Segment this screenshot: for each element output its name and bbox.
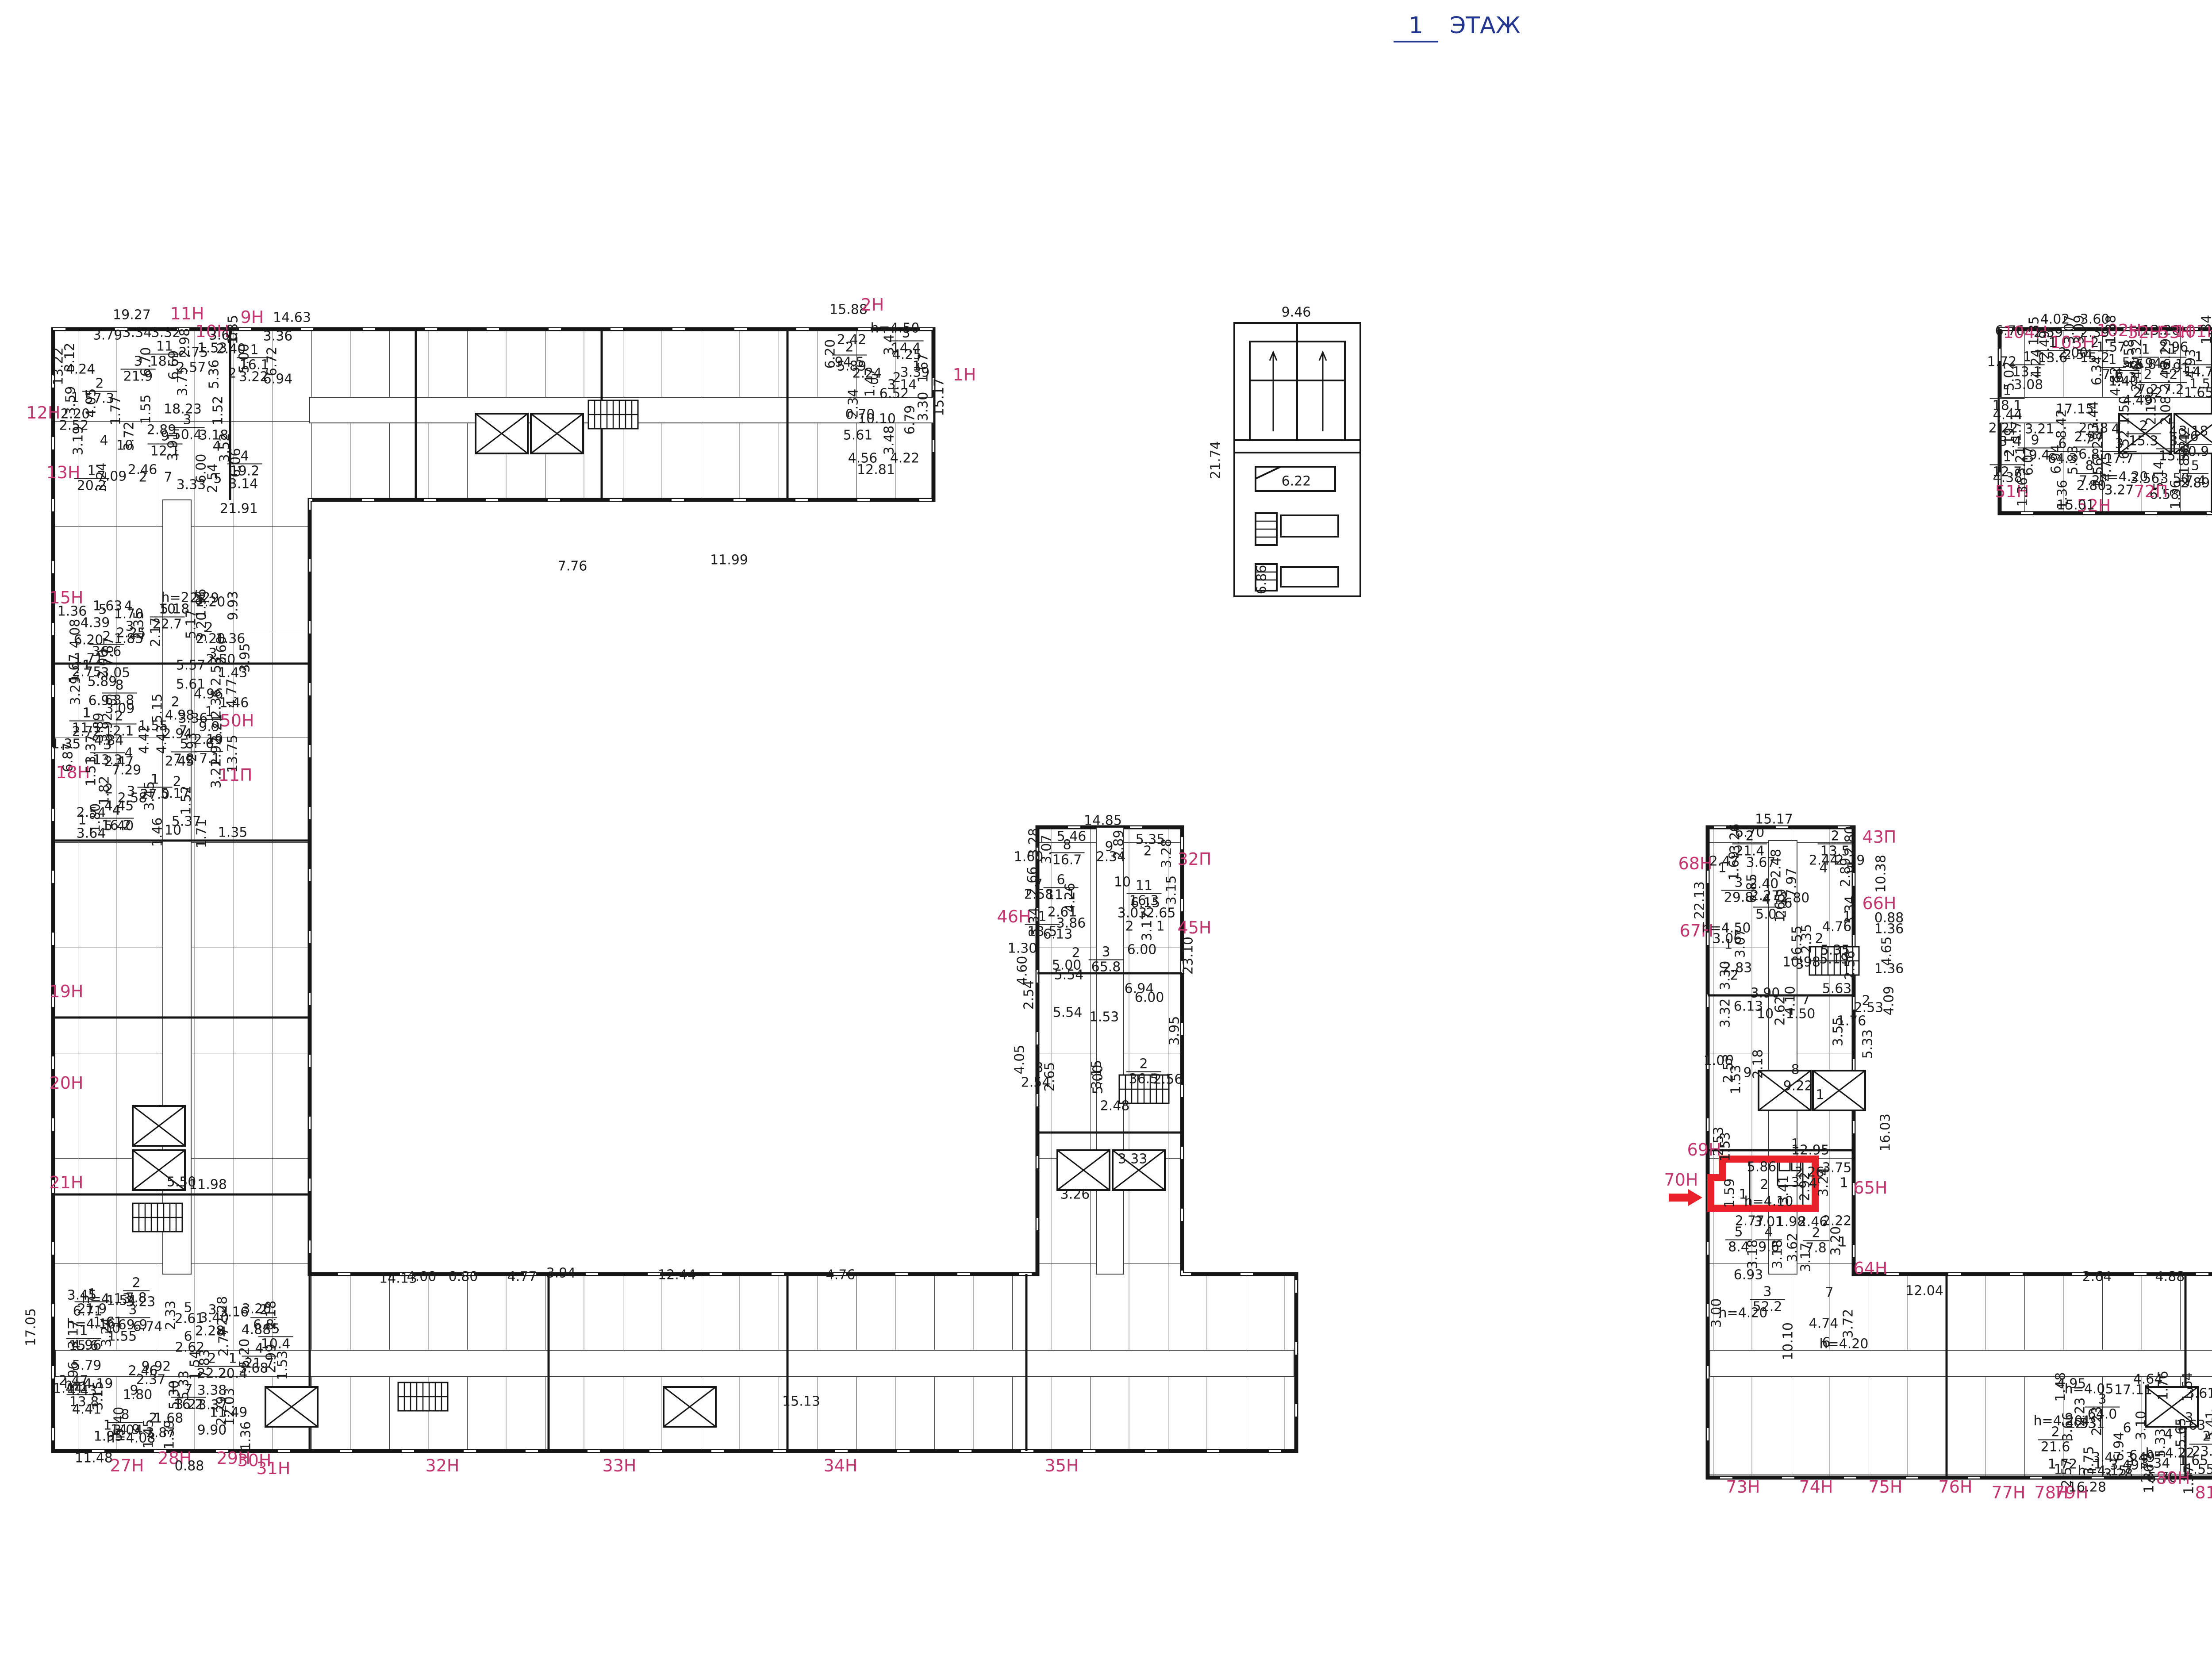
dimension-label: 22.13 bbox=[1693, 881, 1707, 919]
dimension-label: 5.37 bbox=[172, 814, 201, 829]
dimension-label: 2.54 bbox=[2063, 348, 2093, 362]
dimension-label: 5.46 bbox=[1057, 829, 1087, 844]
dimension-label: 1.33 bbox=[2067, 1417, 2097, 1431]
dimension-label: 1.49 bbox=[218, 1405, 248, 1420]
dimension-label: 2.20 bbox=[196, 595, 226, 609]
dimension-label: 5 bbox=[213, 472, 222, 486]
plan-labels: 9.4621.746.226.8619.2711Н10Н9Н14.6315.88… bbox=[0, 0, 2212, 1678]
dimension-label: 6.52 bbox=[879, 387, 909, 401]
dimension-label: 3.17 bbox=[1140, 912, 1154, 941]
dimension-label: 4.41 bbox=[72, 1402, 102, 1417]
unit-number-label: 81Н bbox=[2195, 1484, 2212, 1502]
dimension-label: 11.98 bbox=[189, 1178, 227, 1192]
dimension-label: 1 bbox=[1816, 1088, 1824, 1102]
dimension-label: 7.09 bbox=[97, 469, 127, 484]
unit-number-label: 31Н bbox=[257, 1460, 291, 1478]
dimension-label: 1.52 bbox=[211, 396, 225, 426]
dimension-label: 1.36 bbox=[2142, 1464, 2156, 1494]
dimension-label: 6.70 bbox=[139, 347, 153, 377]
unit-number-label: 65Н bbox=[1854, 1179, 1888, 1197]
dimension-label: 5.86 bbox=[1747, 1160, 1777, 1174]
dimension-label: 365.8 bbox=[1089, 945, 1124, 974]
dimension-label: 3.33 bbox=[1118, 1152, 1148, 1166]
dimension-label: 4.96 bbox=[72, 1338, 102, 1352]
dimension-label: 6.86 bbox=[1255, 565, 1269, 595]
dimension-label: 16.28 bbox=[2068, 1480, 2106, 1494]
unit-number-label: 13Н bbox=[46, 464, 81, 482]
dimension-label: 1 bbox=[1839, 1176, 1848, 1190]
unit-number-label: 11Н bbox=[170, 305, 204, 323]
unit-number-label: 12Н bbox=[27, 404, 61, 422]
dimension-label: 2 bbox=[138, 470, 147, 484]
dimension-label: 3.24 bbox=[1816, 1167, 1831, 1197]
dimension-label: 6.20 bbox=[823, 339, 837, 369]
dimension-label: 1.43 bbox=[218, 666, 248, 680]
dimension-label: 3.18 bbox=[1770, 1240, 1785, 1269]
dimension-label: 7.76 bbox=[558, 559, 588, 573]
dimension-label: 10.98 bbox=[1782, 955, 1820, 969]
dimension-label: 3.10 bbox=[2134, 1411, 2148, 1440]
dimension-label: 7.29 bbox=[112, 763, 142, 777]
dimension-label: 5.54 bbox=[1053, 1006, 1083, 1020]
dimension-label: 3.17 bbox=[1799, 1243, 1813, 1272]
unit-number-label: 32Н bbox=[426, 1457, 460, 1475]
dimension-label: 1.65 bbox=[1773, 893, 1787, 923]
dimension-label: 12.81 bbox=[857, 463, 895, 477]
dimension-label: 1 bbox=[1718, 861, 1726, 875]
dimension-label: 2.33 bbox=[164, 1301, 178, 1330]
dimension-label: 2.46 bbox=[128, 1364, 158, 1378]
unit-number-label: 80Н bbox=[2156, 1470, 2190, 1487]
dimension-label: 1.46 bbox=[219, 696, 249, 710]
dimension-label: 2.53 bbox=[1854, 1001, 1884, 1015]
dimension-label: 1.36 bbox=[2169, 480, 2183, 510]
dimension-label: 1.39 bbox=[162, 1420, 177, 1450]
dimension-label: 9.46 bbox=[1282, 305, 1311, 319]
dimension-label: 1.36 bbox=[2016, 477, 2030, 507]
dimension-label: 1.72 bbox=[1987, 355, 2017, 369]
dimension-label: 215.3 bbox=[2126, 419, 2161, 448]
dimension-label: 5.40 bbox=[104, 819, 134, 833]
dimension-label: 2.54 bbox=[1022, 980, 1036, 1010]
dimension-label: 7 bbox=[1825, 1286, 1833, 1300]
dimension-label: 2 bbox=[1125, 919, 1133, 933]
dimension-label: 4.93 bbox=[2184, 349, 2198, 379]
unit-number-label: 35Н bbox=[1045, 1457, 1079, 1475]
dimension-label: 7 bbox=[164, 470, 172, 484]
dimension-label: 2 bbox=[1760, 1178, 1768, 1192]
dimension-label: 3.21 bbox=[2025, 422, 2055, 436]
unit-number-label: 64Н bbox=[1854, 1260, 1888, 1278]
dimension-label: 4.00 bbox=[407, 1270, 437, 1284]
dimension-label: 1.51 bbox=[84, 757, 98, 787]
dimension-label: 1.53 bbox=[276, 1351, 290, 1380]
dimension-label: 3.95 bbox=[1167, 1016, 1182, 1046]
dimension-label: 11.99 bbox=[710, 553, 748, 567]
dimension-label: 1.76 bbox=[2156, 1371, 2170, 1401]
unit-number-label: 20Н bbox=[50, 1075, 84, 1092]
dimension-label: 6.00 bbox=[1127, 943, 1157, 957]
dimension-label: 15.13 bbox=[782, 1394, 820, 1409]
dimension-label: 2.89 bbox=[1112, 830, 1126, 860]
dimension-label: 1.36 bbox=[1874, 922, 1904, 936]
dimension-label: 6.20 bbox=[74, 633, 104, 647]
dimension-label: 7 bbox=[1801, 993, 1810, 1007]
dimension-label: 0.88 bbox=[175, 1459, 204, 1473]
dimension-label: 2.89 bbox=[1839, 858, 1853, 887]
dimension-label: 2.48 bbox=[1769, 849, 1783, 879]
unit-number-label: 76Н bbox=[1939, 1478, 1973, 1496]
dimension-label: 3.30 bbox=[1718, 961, 1732, 991]
dimension-label: 3.14 bbox=[229, 477, 258, 491]
dimension-label: 2 bbox=[171, 695, 179, 709]
dimension-label: 5.63 bbox=[1822, 982, 1852, 996]
dimension-label: 3.19 bbox=[71, 426, 85, 456]
dimension-label: 4.10 bbox=[1783, 986, 1797, 1016]
dimension-label: 21.74 bbox=[1209, 441, 1223, 479]
dimension-label: 3.72 bbox=[122, 422, 136, 451]
dimension-label: 8.42 bbox=[2055, 409, 2069, 439]
dimension-label: 1.65 bbox=[2184, 386, 2212, 400]
unit-number-label: 50Н bbox=[220, 712, 254, 730]
dimension-label: 2.17 bbox=[149, 618, 163, 647]
dimension-label: 3.34 bbox=[123, 326, 152, 340]
dimension-label: 1.36 bbox=[239, 1421, 253, 1451]
dimension-label: h=4.20 bbox=[1719, 1306, 1768, 1320]
dimension-label: 3.28 bbox=[2104, 1467, 2133, 1481]
dimension-label: 1.34 bbox=[2200, 315, 2212, 345]
unit-number-label: 74Н bbox=[1799, 1478, 1833, 1496]
dimension-label: 3.36 bbox=[263, 329, 293, 343]
unit-number-label: 77Н bbox=[1992, 1484, 2026, 1502]
unit-number-label: 75Н bbox=[1869, 1478, 1903, 1496]
unit-number-label: 19Н bbox=[50, 983, 84, 1001]
dimension-label: 3.09 bbox=[2072, 315, 2086, 345]
dimension-label: 2.48 bbox=[1100, 1099, 1130, 1113]
dimension-label: 3.64 bbox=[77, 826, 106, 841]
dimension-label: 3.29 bbox=[69, 676, 83, 706]
dimension-label: 3.94 bbox=[546, 1266, 576, 1280]
unit-number-label: 1Н bbox=[953, 366, 976, 384]
dimension-label: 2.56 bbox=[1843, 951, 1857, 980]
unit-number-label: 32П bbox=[1178, 851, 1212, 868]
dimension-label: 1.35 bbox=[226, 315, 240, 345]
dimension-label: 1.46 bbox=[150, 818, 165, 847]
dimension-label: 8 bbox=[1791, 1063, 1799, 1077]
dimension-label: 23.10 bbox=[1181, 937, 1195, 975]
dimension-label: 5.57 bbox=[176, 658, 206, 672]
dimension-label: 3.72 bbox=[1841, 1309, 1855, 1339]
dimension-label: 3.91 bbox=[166, 432, 180, 461]
dimension-label: h=4.50 bbox=[871, 321, 920, 335]
dimension-label: 4 bbox=[100, 434, 108, 448]
dimension-label: 4.42 bbox=[137, 725, 151, 754]
dimension-label: 2.56 bbox=[1153, 1072, 1183, 1087]
dimension-label: 1.30 bbox=[1008, 941, 1037, 956]
dimension-label: 3.18 bbox=[2179, 424, 2208, 438]
dimension-label: 6.74 bbox=[133, 1320, 163, 1334]
dimension-label: 3.20 bbox=[1829, 1226, 1843, 1256]
dimension-label: 6.22 bbox=[1282, 474, 1311, 488]
dimension-label: 19.27 bbox=[113, 308, 151, 322]
dimension-label: 5.36 bbox=[207, 360, 221, 389]
dimension-label: 2 bbox=[228, 366, 236, 380]
unit-number-label: 72П bbox=[2134, 483, 2168, 501]
unit-number-label: 73Н bbox=[1726, 1478, 1760, 1496]
dimension-label: 3.07 bbox=[1040, 835, 1054, 864]
unit-number-label: 34Н bbox=[824, 1457, 858, 1475]
dimension-label: 6.13 bbox=[1043, 927, 1073, 941]
dimension-label: 1.55 bbox=[108, 1329, 137, 1344]
unit-number-label: 68Н bbox=[1678, 855, 1713, 873]
dimension-label: 3.00 bbox=[1709, 1298, 1724, 1328]
dimension-label: 10.10 bbox=[858, 412, 896, 426]
dimension-label: 1.53 bbox=[1729, 1065, 1743, 1094]
dimension-label: 4.77 bbox=[507, 1270, 537, 1284]
dimension-label: 2.58 bbox=[2079, 421, 2108, 435]
dimension-label: 12.44 bbox=[658, 1268, 696, 1282]
dimension-label: 2.64 bbox=[2082, 1270, 2112, 1284]
dimension-label: 4.39 bbox=[81, 616, 110, 630]
unit-number-label: 33Н bbox=[603, 1457, 637, 1475]
dimension-label: 1.67 bbox=[916, 353, 930, 383]
dimension-label: 4.76 bbox=[1822, 920, 1852, 934]
dimension-label: 4.74 bbox=[1809, 1317, 1839, 1331]
unit-number-label: 70Н bbox=[1664, 1171, 1698, 1189]
dimension-label: h=4.20 bbox=[1820, 1337, 1869, 1351]
dimension-label: 3.38 bbox=[197, 1383, 227, 1398]
dimension-label: 6.00 bbox=[1135, 991, 1164, 1005]
dimension-label: 3.41 bbox=[1777, 1175, 1791, 1205]
dimension-label: 9.22 bbox=[1783, 1079, 1813, 1093]
dimension-label: 3.27 bbox=[2104, 483, 2134, 497]
dimension-label: 3.34 bbox=[1027, 907, 1041, 937]
dimension-label: 3.64 bbox=[2210, 1408, 2212, 1437]
dimension-label: 4 bbox=[1819, 861, 1828, 875]
unit-number-label: 2Н bbox=[861, 296, 884, 314]
unit-number-label: 9Н bbox=[241, 309, 264, 326]
dimension-label: 1 bbox=[1791, 1137, 1799, 1151]
dimension-label: 3.26 bbox=[1728, 824, 1742, 853]
dimension-label: 2.08 bbox=[2159, 396, 2173, 426]
floor-plan-page: 1 ЭТАЖ 9.4621.746.226.8619.2711Н10Н9Н14.… bbox=[0, 0, 2212, 1678]
dimension-label: 9.90 bbox=[197, 1423, 227, 1437]
dimension-label: 17.05 bbox=[24, 1308, 38, 1346]
dimension-label: 0.80 bbox=[449, 1270, 478, 1284]
dimension-label: 10.10 bbox=[1781, 1322, 1795, 1360]
dimension-label: 2.18 bbox=[1751, 1049, 1765, 1079]
dimension-label: 3.07 bbox=[1733, 929, 1747, 958]
dimension-label: 1.36 bbox=[1874, 962, 1904, 976]
dimension-label: 15.17 bbox=[932, 378, 946, 416]
unit-number-label: 21Н bbox=[50, 1174, 84, 1192]
dimension-label: 1 bbox=[1156, 919, 1164, 933]
dimension-label: 3.28 bbox=[1160, 839, 1174, 868]
dimension-label: 3.21 bbox=[209, 759, 223, 789]
dimension-label: 14.63 bbox=[273, 311, 311, 325]
dimension-label: 6.93 bbox=[1734, 1268, 1763, 1282]
dimension-label: 1 bbox=[103, 1418, 111, 1432]
dimension-label: 1.65 bbox=[2179, 1454, 2208, 1468]
dimension-label: 1.55 bbox=[139, 395, 153, 424]
dimension-label: 2.89 bbox=[2181, 476, 2210, 490]
dimension-label: 2.80 bbox=[1843, 826, 1857, 856]
dimension-label: 15.17 bbox=[1755, 812, 1793, 826]
dimension-label: 10 bbox=[1757, 1007, 1774, 1021]
dimension-label: 2 bbox=[104, 782, 113, 796]
dimension-label: 1.47 bbox=[863, 368, 877, 397]
dimension-label: 3.32 bbox=[1718, 998, 1732, 1028]
dimension-label: 5.83 bbox=[2066, 445, 2080, 475]
dimension-label: 6.07 bbox=[2021, 446, 2035, 476]
dimension-label: 419.2 bbox=[227, 449, 262, 478]
dimension-label: 6.94 bbox=[263, 372, 293, 386]
dimension-label: 16.03 bbox=[1878, 1114, 1893, 1152]
dimension-label: 10.38 bbox=[1874, 855, 1888, 893]
dimension-label: 1.77 bbox=[109, 396, 123, 426]
dimension-label: 3.79 bbox=[93, 328, 123, 342]
dimension-label: 7.83 bbox=[198, 1349, 212, 1379]
dimension-label: 3.75 bbox=[2082, 1446, 2096, 1476]
dimension-label: 5.00 bbox=[1091, 1065, 1105, 1094]
dimension-label: 11.48 bbox=[75, 1451, 113, 1465]
dimension-label: 3.15 bbox=[1164, 875, 1179, 905]
dimension-label: 3.68 bbox=[239, 1361, 269, 1375]
dimension-label: 4.05 bbox=[1013, 1045, 1027, 1075]
dimension-label: 1.36 bbox=[2055, 480, 2070, 510]
dimension-label: 1.35 bbox=[218, 826, 248, 840]
dimension-label: 4.88 bbox=[2155, 1270, 2185, 1284]
dimension-label: 1.59 bbox=[1723, 1179, 1737, 1208]
dimension-label: 5.54 bbox=[1054, 968, 1084, 982]
dimension-label: 2.65 bbox=[1043, 1062, 1057, 1092]
dimension-label: 4.24 bbox=[66, 362, 96, 376]
dimension-label: 510.4 bbox=[258, 1322, 293, 1351]
dimension-label: 3.26 bbox=[1060, 1187, 1090, 1202]
dimension-label: 5.61 bbox=[843, 428, 873, 442]
dimension-label: 12.04 bbox=[1905, 1284, 1943, 1298]
dimension-label: 4.09 bbox=[1882, 986, 1896, 1016]
dimension-label: 3.55 bbox=[1831, 1017, 1845, 1047]
dimension-label: 4.76 bbox=[826, 1268, 856, 1282]
unit-number-label: 27Н bbox=[110, 1457, 144, 1475]
dimension-label: 3.62 bbox=[1786, 1233, 1800, 1263]
dimension-label: 1.53 bbox=[1090, 1010, 1119, 1024]
dimension-label: 1.80 bbox=[123, 1388, 153, 1402]
dimension-label: 9.93 bbox=[226, 591, 240, 621]
dimension-label: 3.32 bbox=[151, 326, 181, 340]
dimension-label: 14.85 bbox=[1084, 814, 1122, 828]
dimension-label: 3.61 bbox=[2186, 1386, 2212, 1401]
unit-number-label: 45Н bbox=[1178, 919, 1212, 937]
dimension-label: 21.91 bbox=[220, 502, 258, 516]
dimension-label: 3.30 bbox=[916, 392, 930, 422]
dimension-label: 2.45 bbox=[165, 754, 195, 768]
dimension-label: 5.33 bbox=[1861, 1029, 1875, 1059]
dimension-label: 6.79 bbox=[903, 405, 917, 435]
dimension-label: 5.65 bbox=[2174, 1418, 2188, 1448]
dimension-label: 1.52 bbox=[179, 786, 193, 815]
dimension-label: 3.75 bbox=[176, 367, 190, 396]
unit-number-label: 43П bbox=[1863, 829, 1897, 846]
dimension-label: 1.53 bbox=[1718, 1132, 1732, 1162]
dimension-label: 3.33 bbox=[177, 478, 206, 492]
